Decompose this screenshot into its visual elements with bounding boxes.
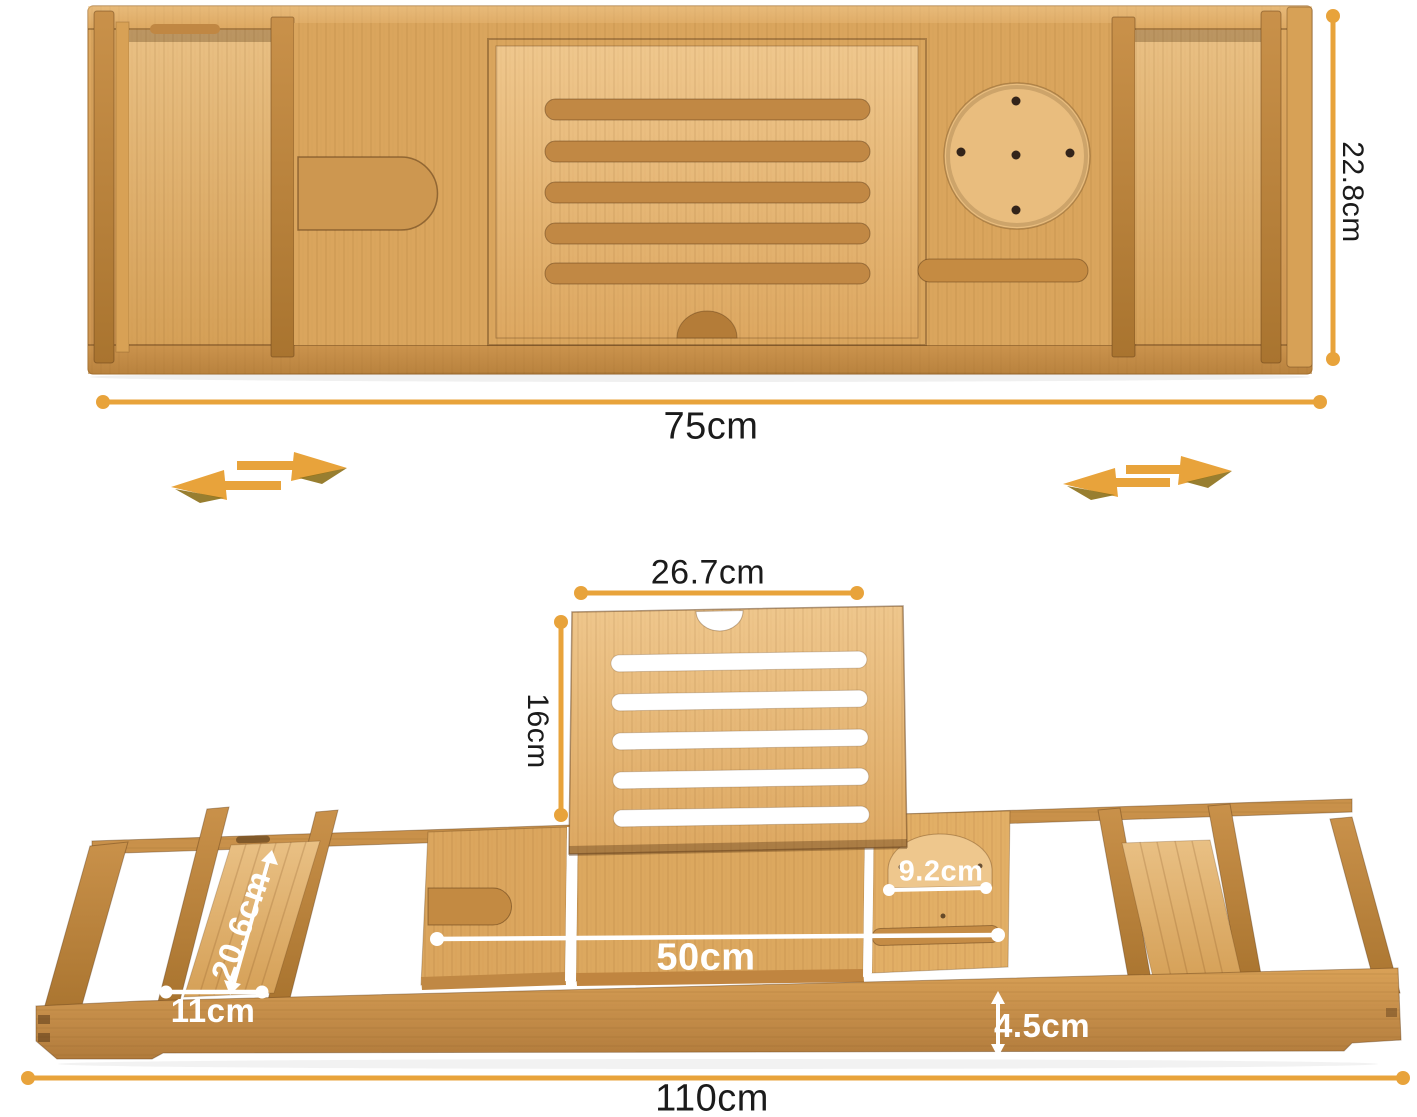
dim-label-cup-recess: 9.2cm bbox=[899, 856, 984, 889]
extended-left-deck bbox=[421, 827, 567, 990]
dim-label-stand-width: 26.7cm bbox=[651, 554, 766, 593]
dim-label-stand-height: 16cm bbox=[520, 693, 554, 768]
cup-holder-recess bbox=[944, 83, 1090, 229]
phone-slot-cutout bbox=[298, 157, 438, 230]
dim-label-total-width: 110cm bbox=[655, 1078, 769, 1117]
top-view-left-extension bbox=[94, 11, 294, 363]
dim-label-side-tray-width: 11cm bbox=[171, 992, 256, 1030]
top-view-main-deck bbox=[294, 23, 1112, 345]
dim-label-top-width: 75cm bbox=[664, 406, 759, 449]
tray-top-view-photo bbox=[88, 6, 1312, 382]
extend-arrows-left-icon bbox=[171, 452, 347, 503]
dim-label-top-depth: 22.8cm bbox=[1335, 141, 1369, 242]
dim-label-center-width: 50cm bbox=[656, 937, 755, 980]
extend-arrows-right-icon bbox=[1063, 456, 1232, 500]
accessory-slot bbox=[918, 259, 1088, 282]
phone-slot-cutout bbox=[428, 888, 512, 925]
book-stand bbox=[569, 606, 907, 856]
dim-label-rail-height: 4.5cm bbox=[994, 1007, 1090, 1045]
product-dimension-diagram: 75cm 22.8cm 26.7cm 16cm 20.6cm 11cm 50cm… bbox=[0, 0, 1417, 1117]
